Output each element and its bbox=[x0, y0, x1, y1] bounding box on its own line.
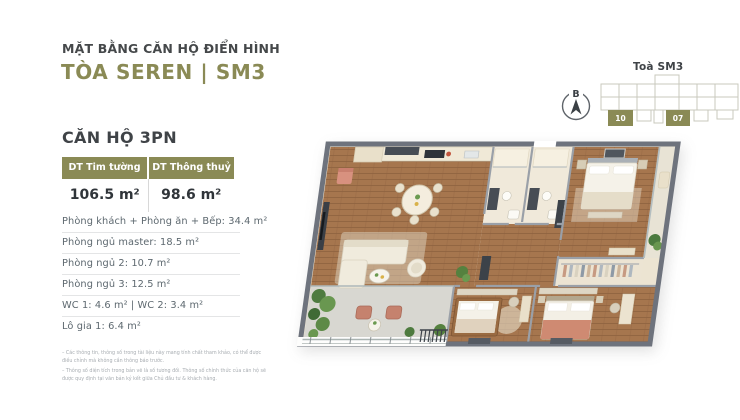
floor-plan-render bbox=[266, 114, 740, 410]
footnote-1: – Các thông tin, thông số trong tài liệu… bbox=[62, 350, 267, 366]
area-value-tim-tuong: 106.5 m² bbox=[62, 179, 149, 212]
room-row-bedroom3: Phòng ngủ 3: 12.5 m² bbox=[62, 275, 240, 296]
rattan-chair bbox=[385, 306, 402, 319]
cooktop bbox=[424, 150, 445, 158]
wall-art bbox=[604, 149, 625, 158]
room-row-bedroom2: Phòng ngủ 2: 10.7 m² bbox=[62, 254, 240, 275]
room-row-loggia: Lô gia 1: 6.4 m² bbox=[62, 317, 240, 337]
eyebrow-subtitle: MẶT BẰNG CĂN HỘ ĐIỂN HÌNH bbox=[62, 41, 280, 56]
room-list: Phòng khách + Phòng ăn + Bếp: 34.4 m² Ph… bbox=[62, 212, 240, 337]
room-row-wc: WC 1: 4.6 m² | WC 2: 3.4 m² bbox=[62, 296, 240, 317]
area-table-header-thong-thuy: DT Thông thuỷ bbox=[149, 157, 234, 179]
room-row-living: Phòng khách + Phòng ăn + Bếp: 34.4 m² bbox=[62, 212, 240, 233]
loggia-floor bbox=[303, 286, 454, 342]
area-table: DT Tim tường DT Thông thuỷ 106.5 m² 98.6… bbox=[62, 157, 234, 212]
entrance-door-gap bbox=[534, 141, 557, 147]
north-arrow-icon bbox=[571, 99, 582, 115]
rattan-chair bbox=[355, 306, 372, 319]
unit-heading: CĂN HỘ 3PN bbox=[62, 128, 177, 147]
master-dresser bbox=[608, 248, 635, 255]
accent-armchair bbox=[336, 170, 353, 184]
footnote-2: – Thông số diện tích trong bản vẽ là số … bbox=[62, 368, 267, 384]
keyplan-title: Toà SM3 bbox=[633, 61, 683, 73]
room-row-master: Phòng ngủ master: 18.5 m² bbox=[62, 233, 240, 254]
kitchen-upper-cabinet bbox=[384, 147, 419, 155]
area-value-thong-thuy: 98.6 m² bbox=[149, 179, 235, 212]
footnotes: – Các thông tin, thông số trong tài liệu… bbox=[62, 350, 267, 387]
area-table-header-tim-tuong: DT Tim tường bbox=[62, 157, 147, 179]
brochure-slide: MẶT BẰNG CĂN HỘ ĐIỂN HÌNH TÒA SEREN | SM… bbox=[0, 0, 740, 420]
bed-bench bbox=[588, 212, 623, 218]
page-title: TÒA SEREN | SM3 bbox=[61, 60, 266, 84]
kitchen-sink bbox=[464, 151, 479, 158]
compass-north-label: B bbox=[572, 89, 579, 100]
